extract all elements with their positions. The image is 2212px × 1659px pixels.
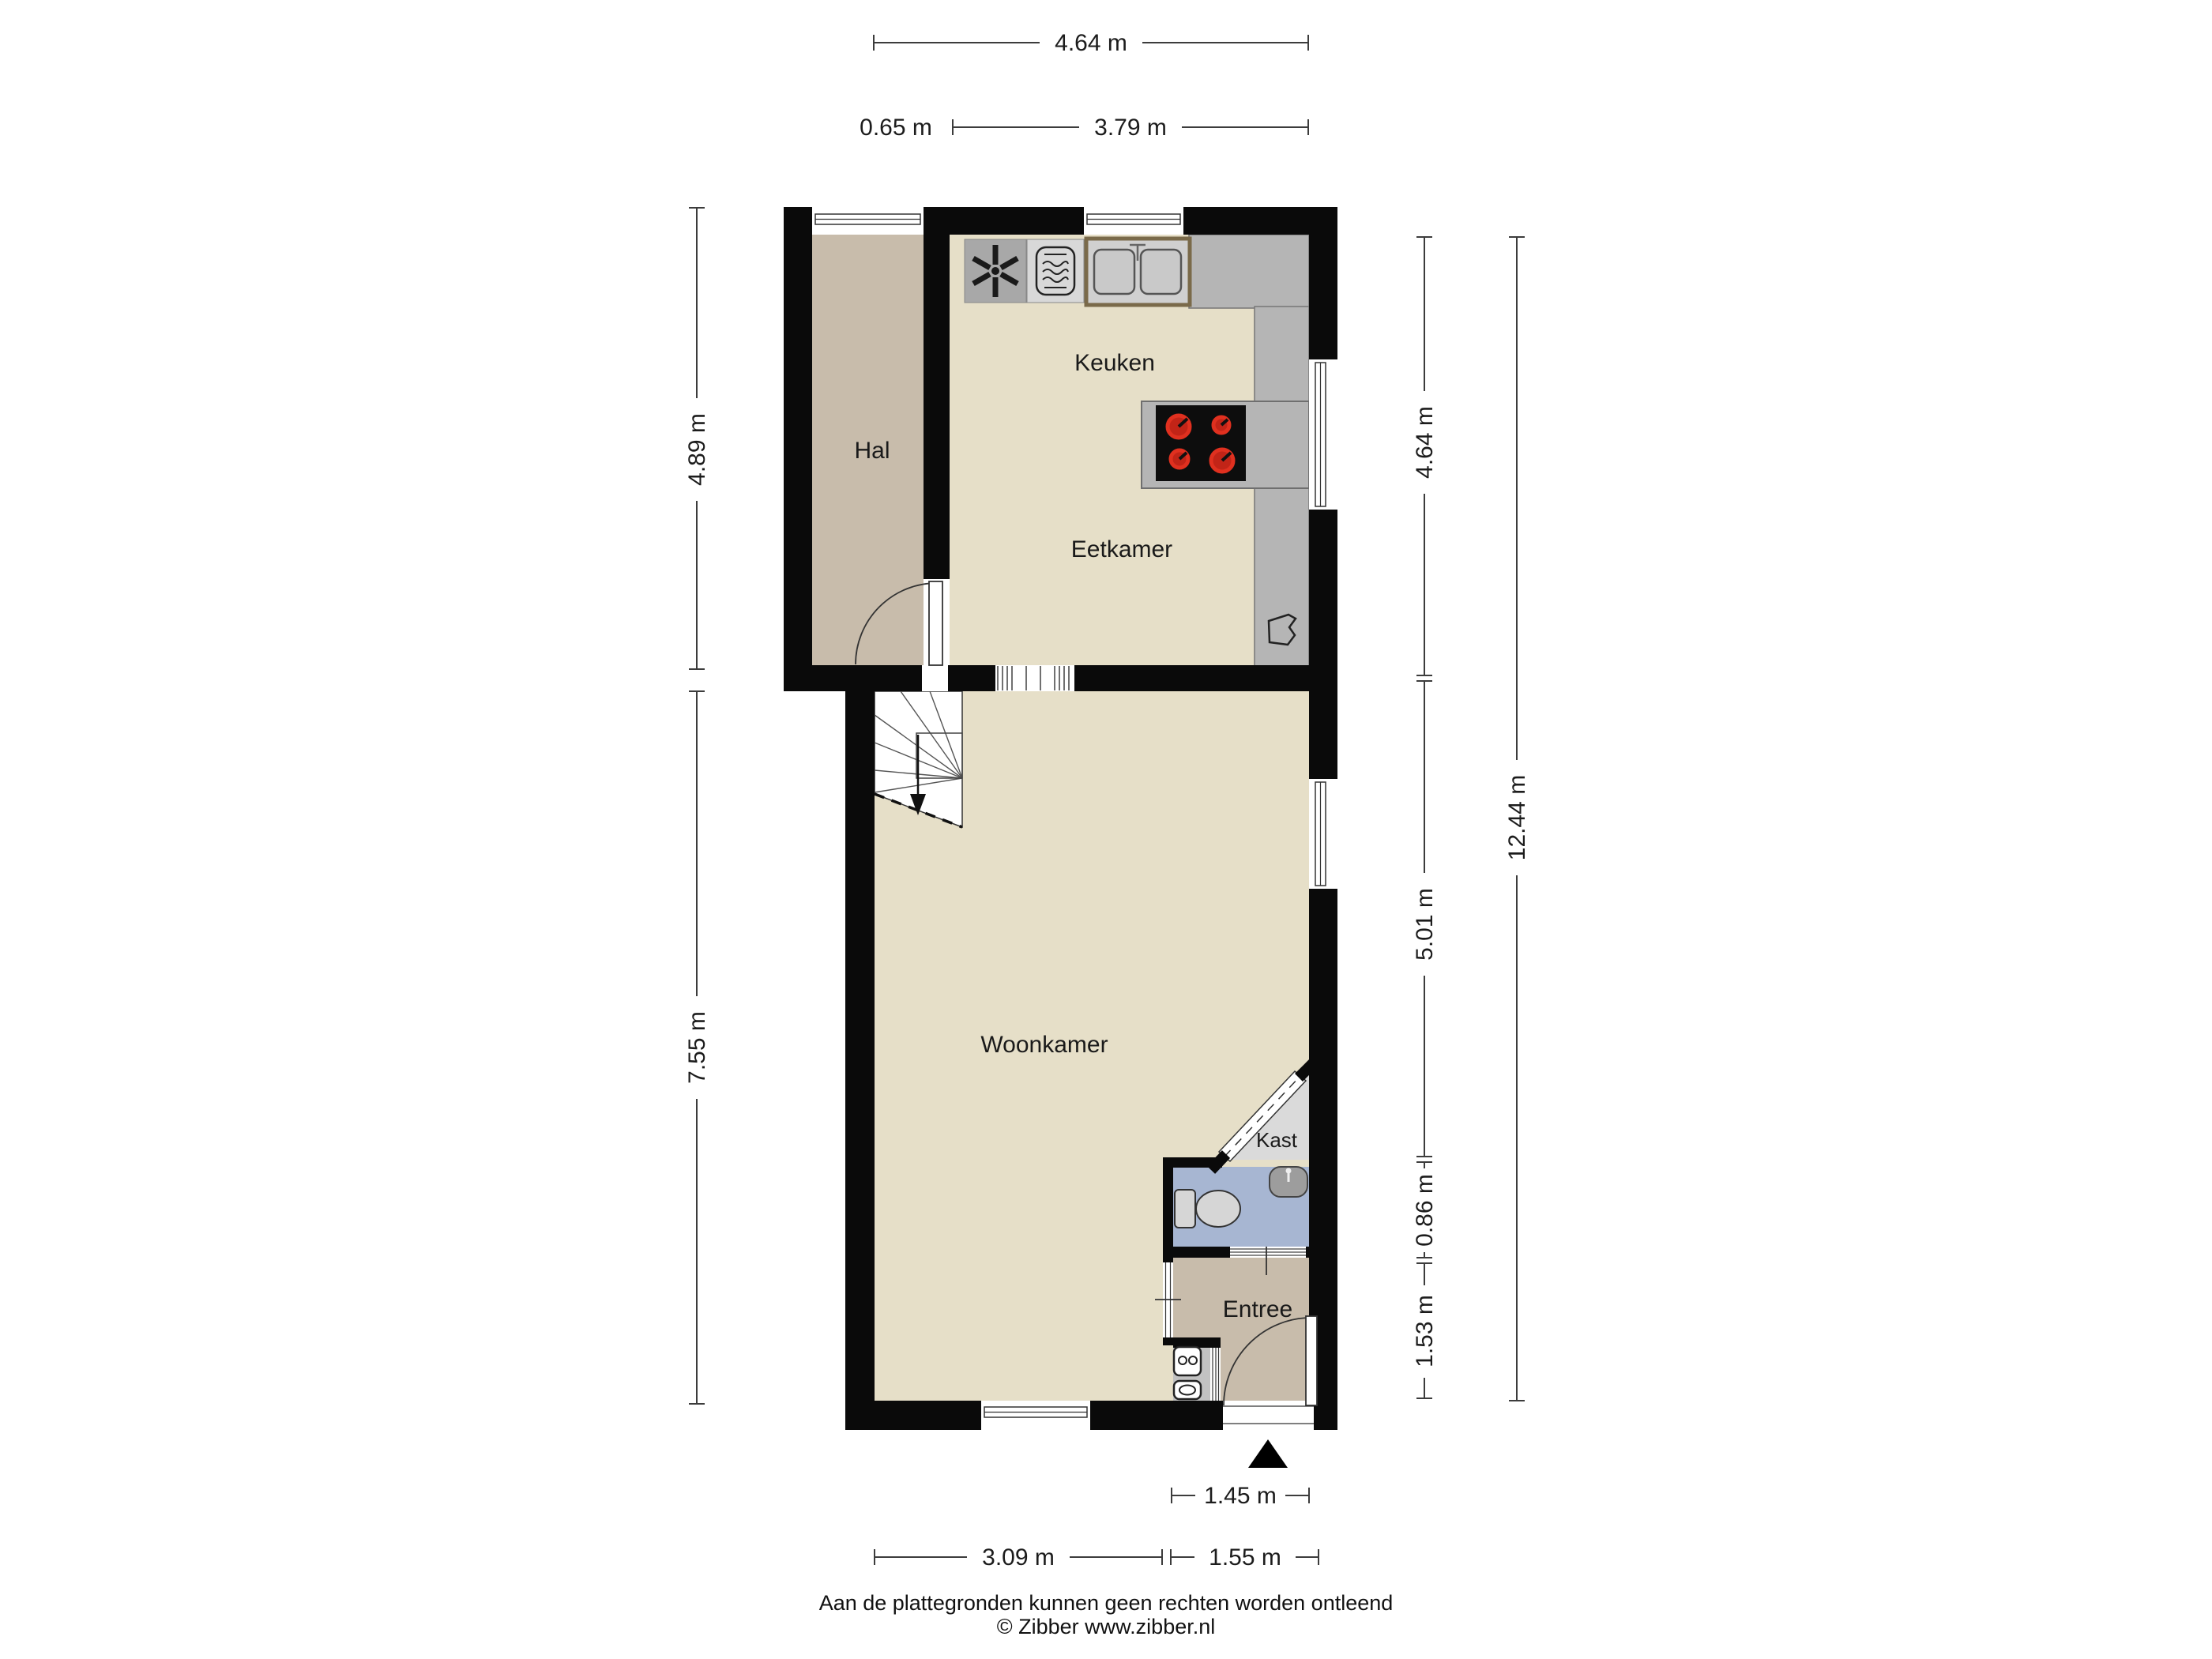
fan-icon [965, 239, 1026, 303]
svg-text:12.44 m: 12.44 m [1504, 775, 1530, 860]
cupboard-door [1210, 1348, 1221, 1401]
footer-copyright: © Zibber www.zibber.nl [997, 1615, 1216, 1638]
room-label-eetkamer: Eetkamer [1071, 536, 1172, 562]
svg-text:3.09 m: 3.09 m [982, 1544, 1055, 1571]
window-woonkamer-bottom [981, 1401, 1090, 1430]
dim-left-hal: 4.89 m [684, 208, 710, 669]
microwave-icon [1027, 239, 1084, 303]
room-label-woonkamer: Woonkamer [980, 1032, 1108, 1058]
svg-text:0.86 m: 0.86 m [1412, 1174, 1438, 1247]
entrance-triangle-icon [1248, 1439, 1288, 1468]
dim-right-entree: 1.53 m [1412, 1263, 1438, 1398]
svg-text:5.01 m: 5.01 m [1412, 888, 1438, 961]
svg-text:4.64 m: 4.64 m [1055, 30, 1127, 56]
window-keuken-top [1084, 207, 1183, 235]
svg-text:1.53 m: 1.53 m [1412, 1295, 1438, 1367]
dim-right-total: 12.44 m [1504, 237, 1530, 1401]
footer-disclaimer: Aan de plattegronden kunnen geen rechten… [819, 1591, 1394, 1615]
floorplan-canvas: Hal Keuken Eetkamer Woonkamer Kast Entre… [0, 0, 2212, 1659]
dim-right-keuken: 4.64 m [1412, 237, 1438, 675]
dim-bottom-door: 1.45 m [1172, 1483, 1309, 1509]
dim-top-hal: 0.65 m [860, 115, 932, 141]
svg-text:1.45 m: 1.45 m [1204, 1483, 1277, 1509]
dim-top-keuken: 3.79 m [953, 115, 1308, 141]
boiler-icon [1174, 1347, 1201, 1399]
sliding-door [995, 665, 1074, 691]
window-keuken-right [1309, 359, 1337, 510]
room-label-keuken: Keuken [1074, 350, 1155, 376]
washbasin-icon [1270, 1167, 1307, 1197]
dim-top-total: 4.64 m [874, 30, 1308, 56]
dim-bottom-entree: 1.55 m [1171, 1544, 1319, 1571]
svg-text:4.64 m: 4.64 m [1412, 406, 1438, 479]
stove-icon [1156, 405, 1246, 481]
svg-text:1.55 m: 1.55 m [1209, 1544, 1281, 1571]
svg-text:3.79 m: 3.79 m [1094, 115, 1167, 141]
room-label-kast: Kast [1256, 1128, 1298, 1152]
toilet-icon [1175, 1190, 1240, 1228]
svg-text:4.89 m: 4.89 m [684, 413, 710, 486]
dim-right-toilet: 0.86 m [1412, 1162, 1438, 1258]
svg-text:7.55 m: 7.55 m [684, 1011, 710, 1084]
dim-bottom-woonkamer: 3.09 m [875, 1544, 1162, 1571]
room-label-hal: Hal [854, 438, 890, 464]
window-hal-top [812, 207, 924, 235]
window-woonkamer-right [1309, 779, 1337, 889]
dim-right-woonkamer: 5.01 m [1412, 681, 1438, 1157]
dim-left-woonkamer: 7.55 m [684, 691, 710, 1404]
room-label-entree: Entree [1223, 1296, 1292, 1322]
double-sink-icon [1086, 239, 1190, 305]
